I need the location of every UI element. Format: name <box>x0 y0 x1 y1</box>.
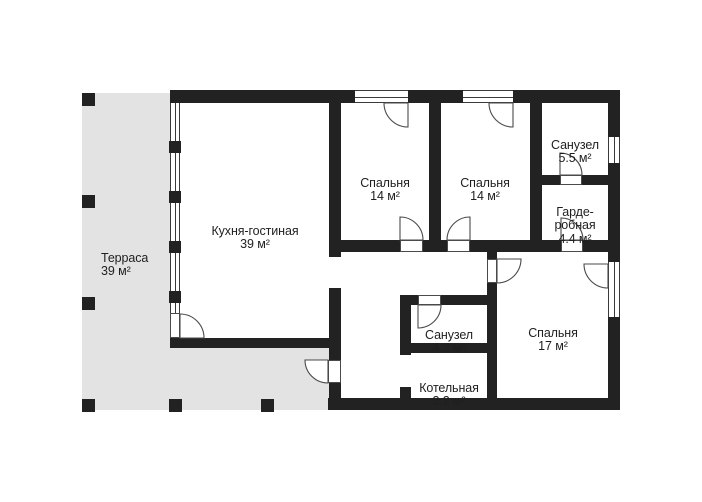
room-name: Кухня-гостиная <box>211 224 298 238</box>
column-post <box>261 399 274 412</box>
room-name: Терраса <box>101 251 148 265</box>
door-leaf <box>328 360 341 383</box>
room-area: 3.2 м² <box>389 395 509 409</box>
glazing-mullion <box>169 191 181 203</box>
door-leaf <box>487 259 497 283</box>
glazing-mullion <box>169 141 181 153</box>
door-leaf <box>447 240 470 252</box>
window-casement-bedroom-2 <box>489 103 513 127</box>
column-post <box>82 399 95 412</box>
room-name: Котельная <box>419 381 479 395</box>
column-post <box>82 93 95 106</box>
room-label-kitchen-living: Кухня-гостиная 39 м² <box>175 211 335 265</box>
room-label-bedroom-3: Спальня 17 м² <box>493 313 613 367</box>
room-name: Спальня <box>360 176 410 190</box>
column-post <box>82 195 95 208</box>
door-leaf <box>400 240 423 252</box>
window <box>608 262 620 317</box>
room-area: 17 м² <box>493 340 613 354</box>
room-area: 39 м² <box>101 265 171 279</box>
column-post <box>82 297 95 310</box>
wall <box>400 295 497 305</box>
door-swing-bedroom-1 <box>400 217 423 240</box>
door-swing-bedroom-2 <box>447 217 470 240</box>
room-label-bathroom-1: Санузел 5.5 м² <box>525 125 625 179</box>
room-area: 5.5 м² <box>525 152 625 166</box>
room-label-terrace: Терраса 39 м² <box>101 238 171 292</box>
room-name: Спальня <box>460 176 510 190</box>
room-area: 4.3 м² <box>399 342 499 356</box>
room-name: Санузел <box>425 328 473 342</box>
door-swing-bedroom-3 <box>497 259 521 283</box>
room-label-bathroom-2: Санузел 4.3 м² <box>399 315 499 369</box>
window-casement-bedroom-3 <box>584 264 608 288</box>
wall <box>170 338 334 348</box>
window-casement-bedroom-1 <box>384 103 408 127</box>
room-name: Гарде- робная <box>554 205 595 233</box>
room-area: 39 м² <box>175 238 335 252</box>
window <box>463 90 513 103</box>
door-swing-kitchen-terrace <box>180 314 204 338</box>
room-label-boiler-room: Котельная 3.2 м² <box>389 368 509 422</box>
window <box>355 90 408 103</box>
room-label-wardrobe: Гарде- робная 4.4 м² <box>525 192 625 260</box>
column-post <box>169 399 182 412</box>
glazing-mullion <box>169 291 181 303</box>
floor-plan: Терраса 39 м² Кухня-гостиная 39 м² Спаль… <box>0 0 702 502</box>
room-area: 4.4 м² <box>525 233 625 247</box>
room-name: Санузел <box>551 138 599 152</box>
room-name: Спальня <box>528 326 578 340</box>
terrace-deck <box>176 348 330 410</box>
door-leaf <box>170 313 180 338</box>
door-leaf <box>418 295 441 305</box>
